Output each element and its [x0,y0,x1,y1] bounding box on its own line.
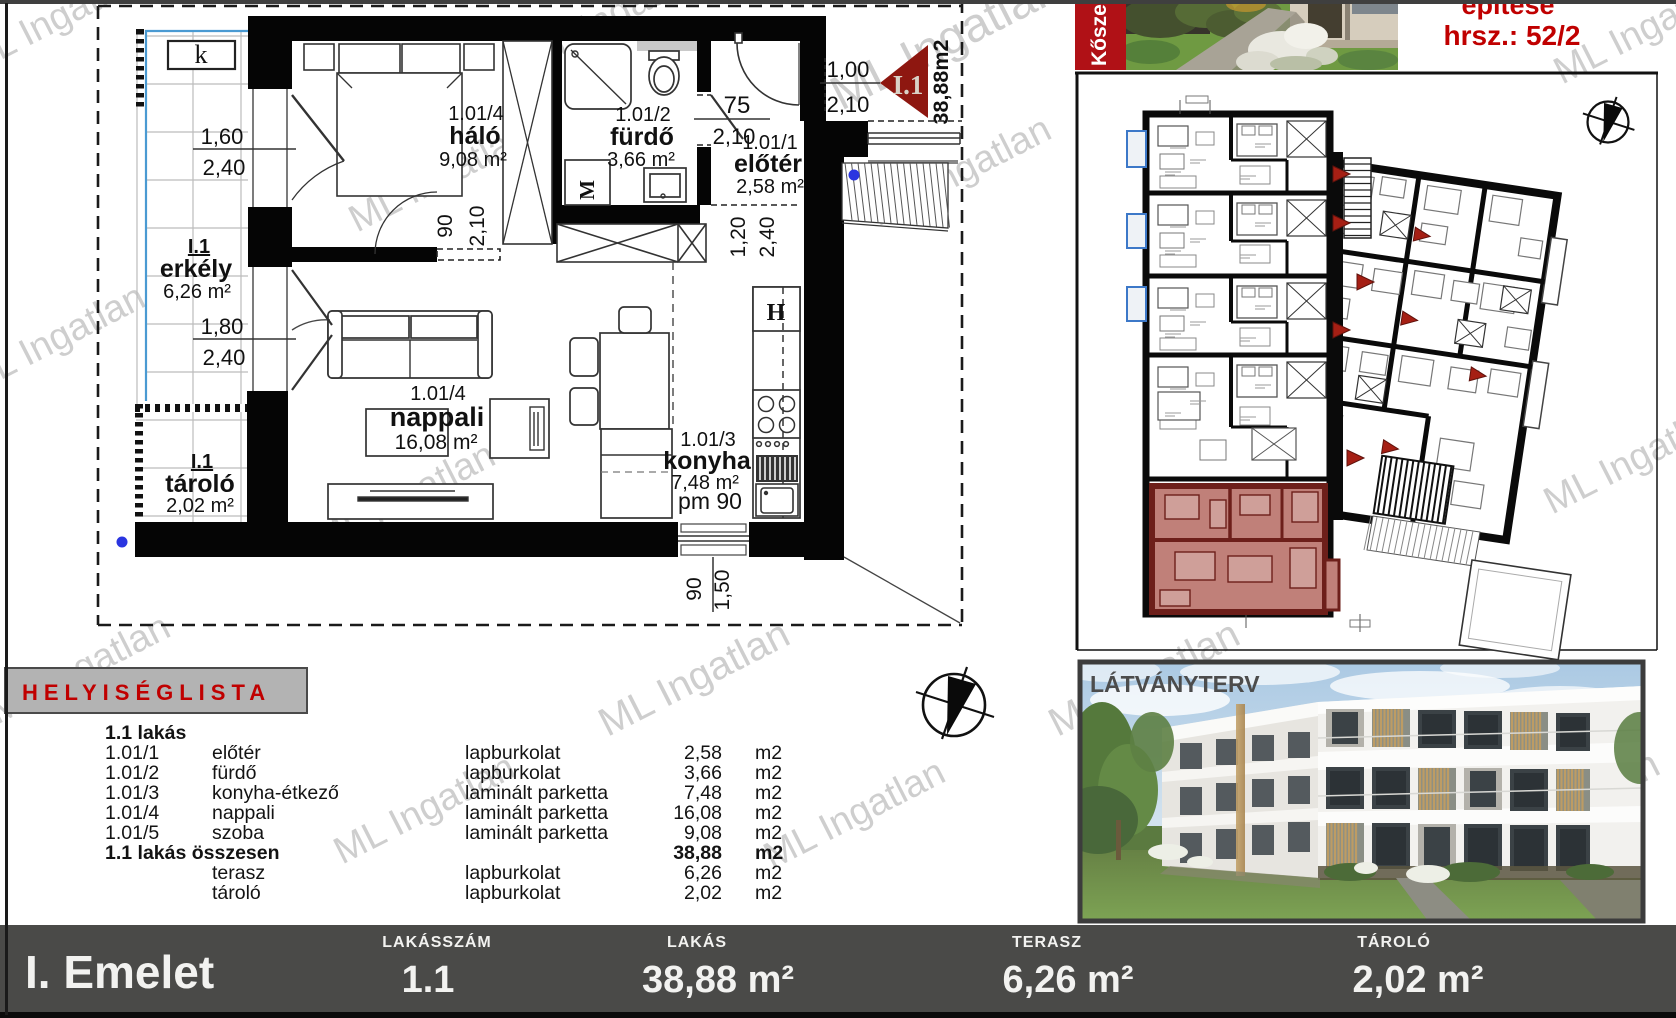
svg-text:1.01/2: 1.01/2 [105,762,159,784]
svg-text:38,88 m²: 38,88 m² [642,959,794,1001]
svg-text:lapburkolat: lapburkolat [465,882,561,904]
svg-text:m2: m2 [755,822,782,844]
svg-text:LAKÁSSZÁM: LAKÁSSZÁM [382,932,491,951]
svg-text:M: M [575,180,599,200]
svg-text:6,26 m²: 6,26 m² [1003,959,1134,1001]
svg-text:m2: m2 [755,882,782,904]
svg-text:lapburkolat: lapburkolat [465,742,561,764]
svg-text:laminált parketta: laminált parketta [465,802,608,824]
svg-text:2,02 m²: 2,02 m² [1353,959,1484,1001]
svg-text:1.01/1: 1.01/1 [105,742,159,764]
svg-text:k: k [195,40,208,69]
svg-text:előtér: előtér [212,742,261,764]
svg-text:2,40: 2,40 [203,345,246,370]
svg-text:2,10: 2,10 [827,92,870,117]
svg-text:laminált parketta: laminált parketta [465,822,608,844]
svg-text:LÁTVÁNYTERV: LÁTVÁNYTERV [1090,670,1260,697]
svg-text:HELYISÉGLISTA: HELYISÉGLISTA [22,680,271,705]
svg-text:H: H [767,300,786,326]
svg-text:lapburkolat: lapburkolat [465,762,561,784]
svg-text:1,20: 1,20 [727,217,750,258]
svg-text:9,08: 9,08 [684,822,722,844]
svg-text:7,48: 7,48 [684,782,722,804]
svg-text:16,08 m²: 16,08 m² [395,431,478,454]
svg-text:2,40: 2,40 [756,217,779,258]
svg-text:erkély: erkély [160,255,232,283]
svg-text:m2: m2 [755,842,783,864]
svg-text:fürdő: fürdő [212,762,257,784]
svg-text:1,00: 1,00 [827,57,870,82]
svg-text:2,58: 2,58 [684,742,722,764]
svg-text:fürdő: fürdő [610,123,674,151]
svg-text:m2: m2 [755,782,782,804]
svg-text:m2: m2 [755,762,782,784]
svg-text:2,40: 2,40 [203,155,246,180]
svg-text:m2: m2 [755,802,782,824]
svg-text:3,66: 3,66 [684,762,722,784]
svg-text:előtér: előtér [734,150,802,178]
svg-text:2,58 m²: 2,58 m² [736,176,804,198]
svg-text:TERASZ: TERASZ [1012,934,1082,951]
svg-text:I. Emelet: I. Emelet [25,946,214,998]
svg-text:konyha-étkező: konyha-étkező [212,782,339,804]
svg-text:pm 90: pm 90 [678,488,742,514]
svg-text:lapburkolat: lapburkolat [465,862,561,884]
svg-text:szoba: szoba [212,822,264,844]
svg-text:1,80: 1,80 [201,314,244,339]
svg-text:nappali: nappali [212,802,275,824]
svg-text:tároló: tároló [212,882,261,904]
svg-text:tároló: tároló [165,470,234,498]
svg-text:terasz: terasz [212,862,265,884]
svg-text:1.1: 1.1 [402,959,455,1001]
svg-text:1,50: 1,50 [711,570,734,611]
svg-text:LAKÁS: LAKÁS [667,932,727,951]
svg-text:Kőszegs: Kőszegs [1088,0,1111,66]
svg-text:nappali: nappali [390,402,485,432]
svg-text:38,88: 38,88 [673,842,722,864]
svg-text:16,08: 16,08 [673,802,722,824]
svg-text:3,66 m²: 3,66 m² [607,149,675,171]
svg-text:I.1: I.1 [893,70,924,100]
svg-text:TÁROLÓ: TÁROLÓ [1357,932,1431,951]
svg-text:2,10: 2,10 [466,206,489,247]
svg-text:hrsz.: 52/2: hrsz.: 52/2 [1444,20,1581,51]
svg-text:9,08 m²: 9,08 m² [439,149,507,171]
svg-text:6,26 m²: 6,26 m² [163,281,231,303]
svg-text:laminált parketta: laminált parketta [465,782,608,804]
svg-text:1,60: 1,60 [201,124,244,149]
svg-text:90: 90 [434,214,457,237]
svg-text:2,02 m²: 2,02 m² [166,495,234,517]
svg-text:1.01/3: 1.01/3 [105,782,159,804]
svg-text:38,88m2: 38,88m2 [929,40,953,125]
svg-text:75: 75 [724,92,751,119]
svg-text:m2: m2 [755,742,782,764]
svg-text:90: 90 [683,577,706,600]
svg-text:1.1 lakás összesen: 1.1 lakás összesen [105,842,280,864]
svg-text:m2: m2 [755,862,782,884]
svg-text:2,02: 2,02 [684,882,722,904]
svg-text:háló: háló [449,122,500,150]
svg-text:1.01/4: 1.01/4 [105,802,159,824]
svg-text:1.1 lakás: 1.1 lakás [105,722,186,744]
svg-text:6,26: 6,26 [684,862,722,884]
svg-text:1.01/5: 1.01/5 [105,822,159,844]
svg-text:konyha: konyha [663,447,752,475]
